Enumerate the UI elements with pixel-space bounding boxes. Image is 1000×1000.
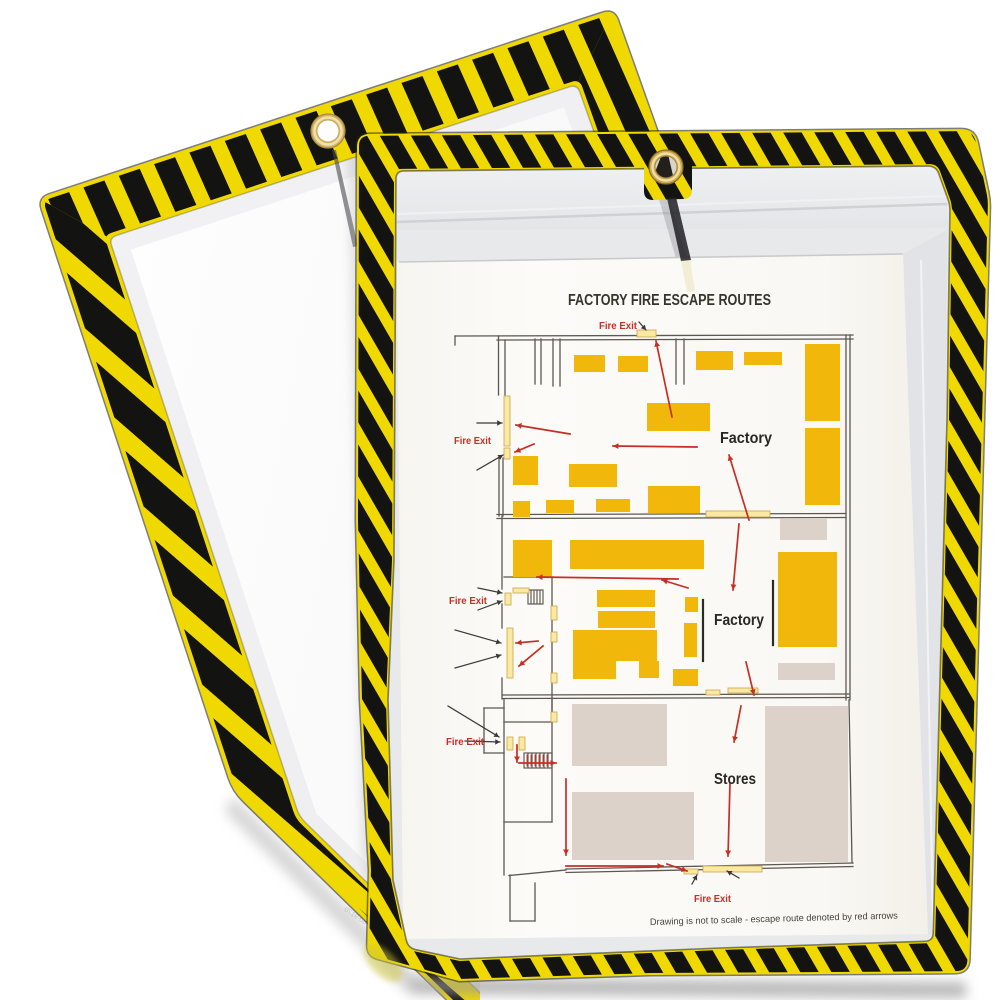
svg-text:FACTORY FIRE ESCAPE ROUTES: FACTORY FIRE ESCAPE ROUTES: [568, 292, 771, 309]
svg-text:Factory: Factory: [720, 430, 772, 447]
svg-text:Fire Exit: Fire Exit: [454, 435, 491, 447]
svg-text:Factory: Factory: [714, 612, 764, 629]
svg-text:Fire Exit: Fire Exit: [599, 320, 637, 332]
svg-text:Fire Exit: Fire Exit: [446, 736, 484, 748]
svg-text:Stores: Stores: [714, 771, 756, 788]
svg-text:Fire Exit: Fire Exit: [449, 595, 487, 607]
svg-text:Fire Exit: Fire Exit: [694, 893, 731, 905]
